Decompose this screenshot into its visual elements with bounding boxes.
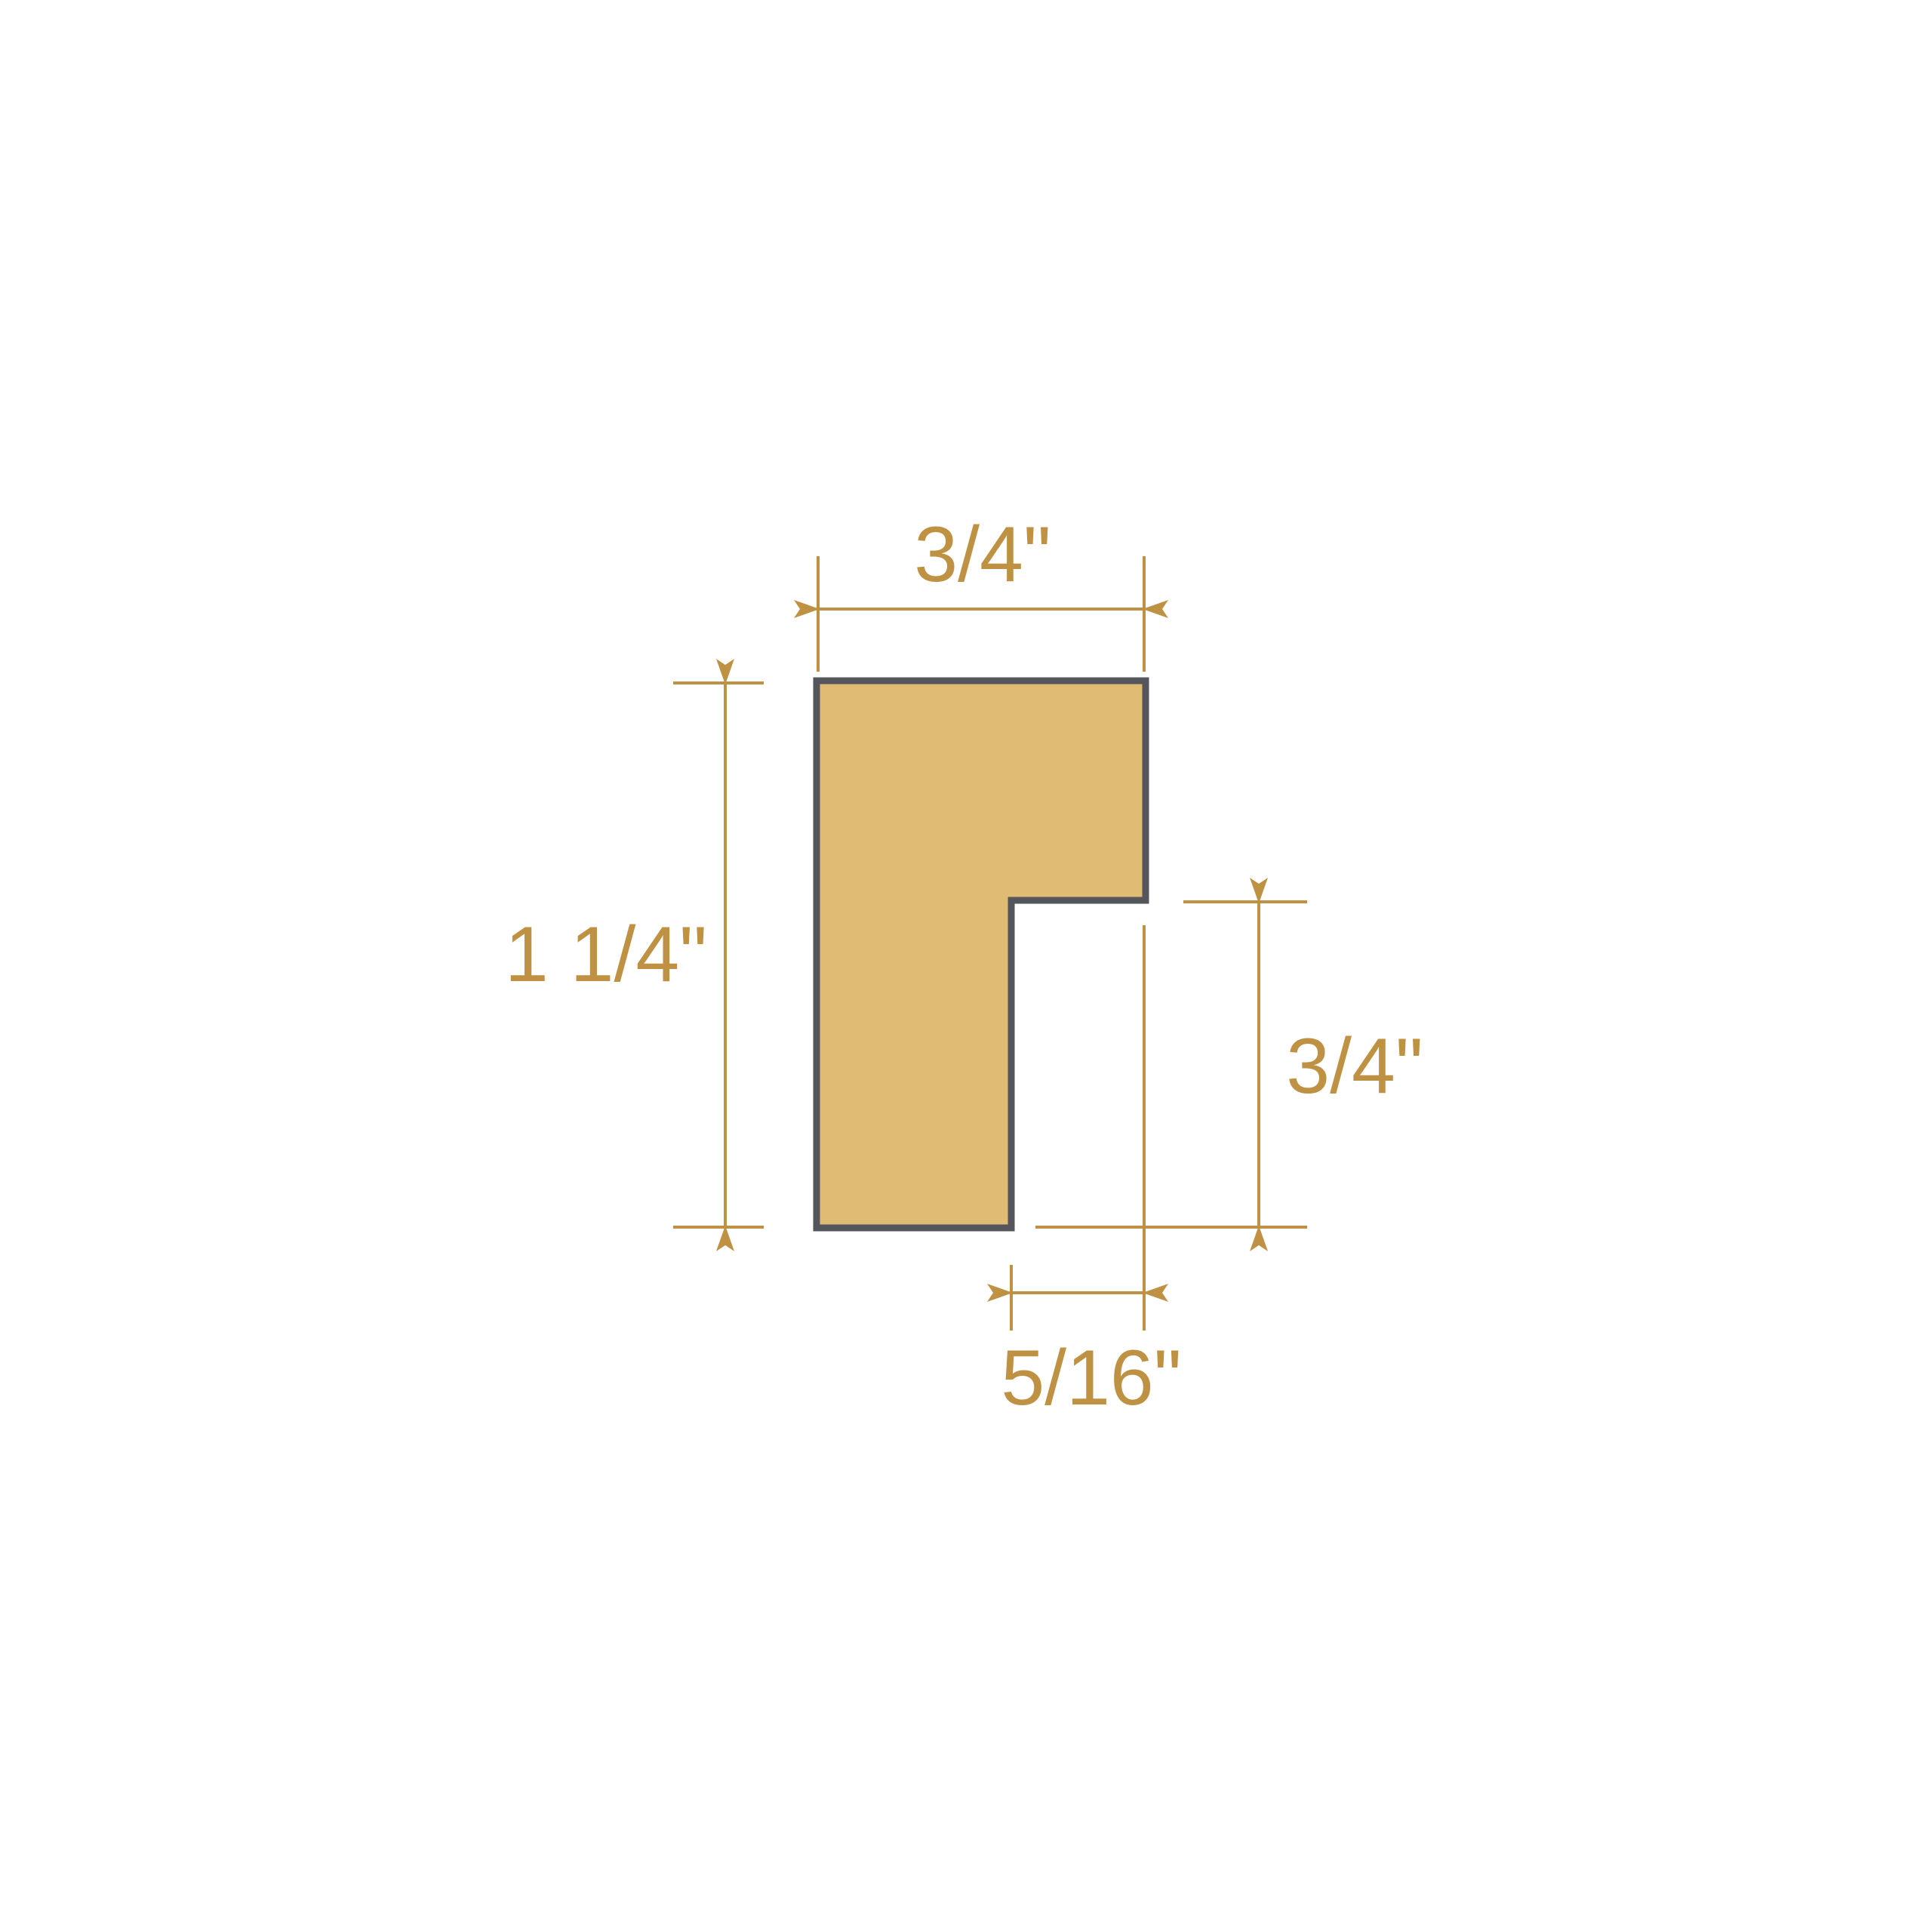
dimension-right-height: 3/4" [1035, 902, 1423, 1227]
dimension-top-width: 3/4" [818, 511, 1144, 672]
profile-outline [817, 681, 1146, 1228]
dimension-label-top-width: 3/4" [914, 511, 1051, 598]
dimension-label-bottom-width: 5/16" [1001, 1334, 1181, 1422]
profile-dimension-diagram: 3/4" 1 1/4" 3/4" 5/16" [0, 0, 1932, 1932]
profile-shape [817, 681, 1146, 1228]
page-background: 3/4" 1 1/4" 3/4" 5/16" [0, 0, 1932, 1932]
dimension-label-right-height: 3/4" [1286, 1023, 1423, 1110]
dimension-label-left-height: 1 1/4" [505, 911, 707, 998]
dimension-bottom-width: 5/16" [1001, 925, 1181, 1422]
dimension-left-height: 1 1/4" [505, 683, 764, 1227]
